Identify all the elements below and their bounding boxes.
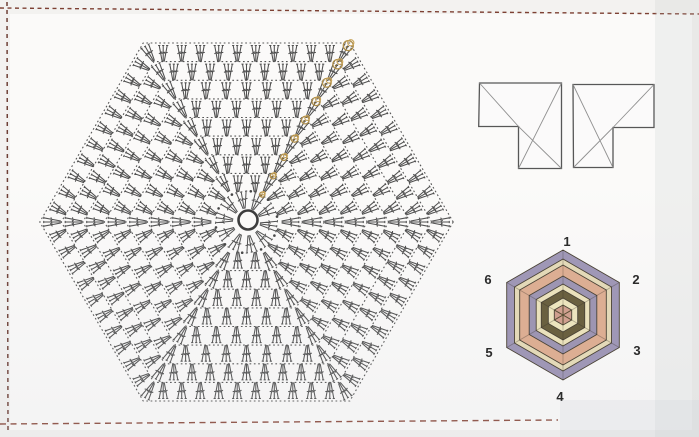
svg-text:3: 3 — [633, 343, 640, 358]
svg-text:5: 5 — [485, 345, 492, 360]
svg-text:1: 1 — [563, 234, 570, 249]
svg-text:6: 6 — [484, 272, 491, 287]
svg-text:2: 2 — [632, 272, 639, 287]
